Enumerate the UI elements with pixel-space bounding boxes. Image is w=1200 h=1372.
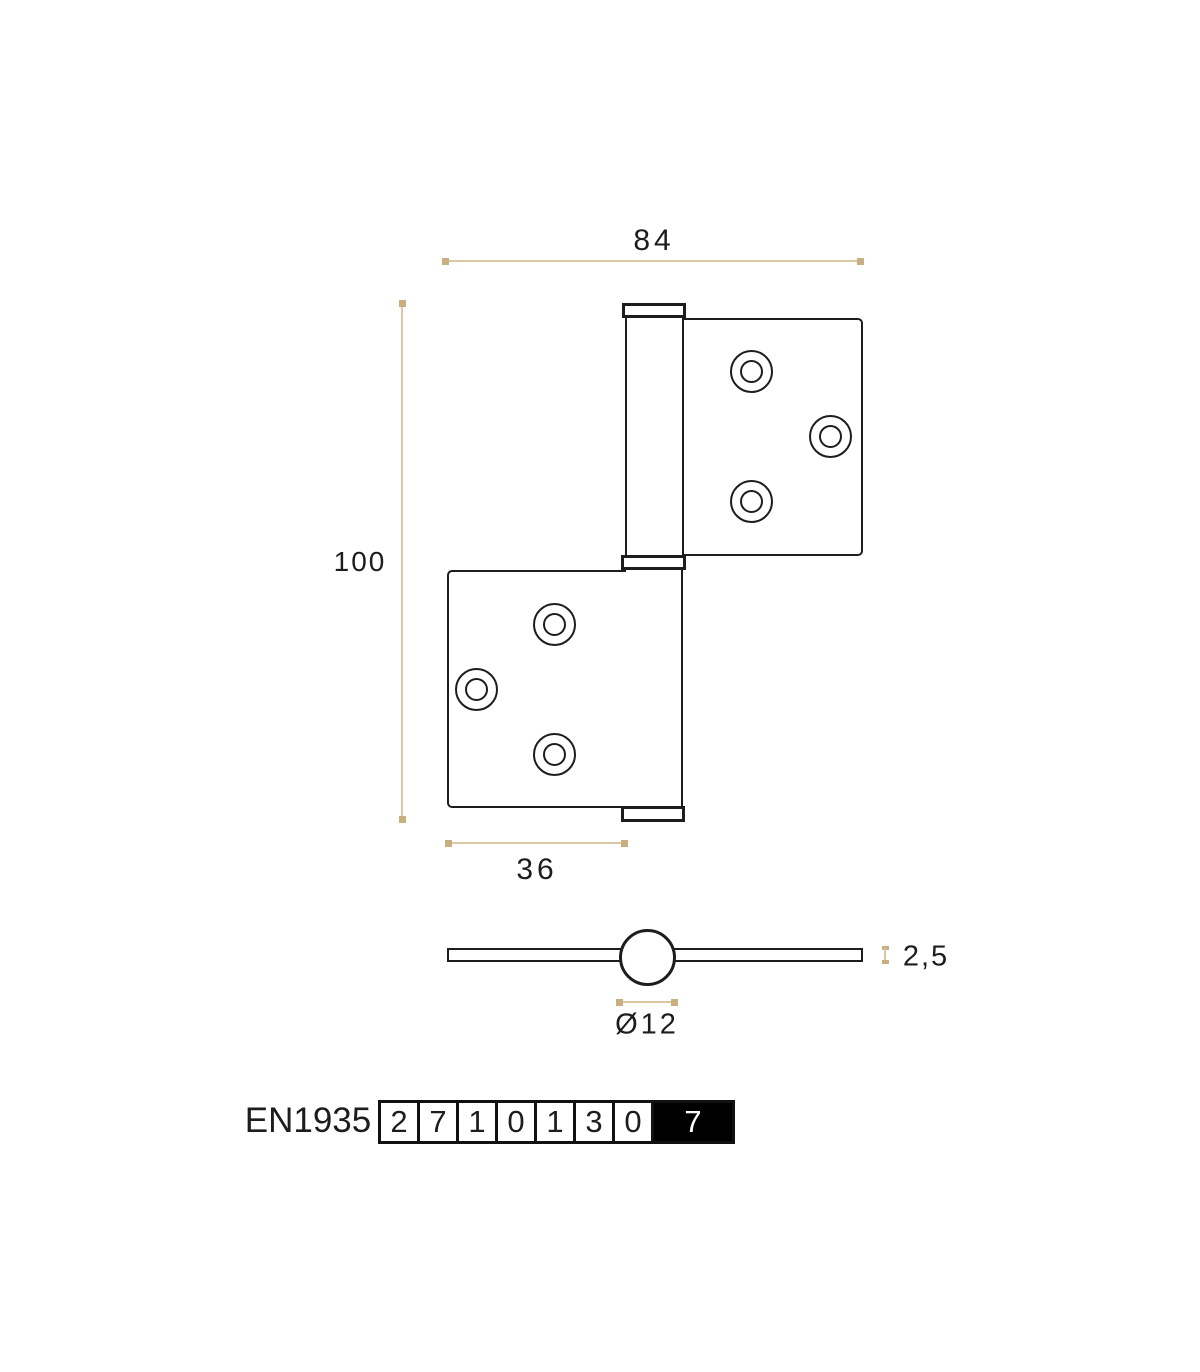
dim-endpoint-dot (621, 840, 628, 847)
screw-hole-inner (543, 613, 566, 636)
screw-hole (533, 733, 576, 776)
screw-hole-inner (465, 678, 488, 701)
dim-endpoint-dot (857, 258, 864, 265)
en1935-grade-cell: 1 (537, 1103, 576, 1141)
en1935-grade-cell: 0 (615, 1103, 654, 1141)
en1935-grade-cell: 0 (498, 1103, 537, 1141)
knuckle-diameter-dim-label: Ø12 (615, 1009, 679, 1042)
screw-hole (730, 480, 773, 523)
screw-hole (809, 415, 852, 458)
dim-endpoint-dot (445, 840, 452, 847)
overall-height-dim-label: 100 (334, 546, 387, 578)
knuckle-diameter-dim-line (619, 1001, 675, 1003)
en1935-grade-cell: 3 (576, 1103, 615, 1141)
en1935-grade-cell: 2 (381, 1103, 420, 1141)
en1935-grade-cell: 7 (420, 1103, 459, 1141)
en1935-grade-table: 2 7 1 0 1 3 0 7 (378, 1100, 735, 1144)
section-knuckle-circle (619, 929, 676, 986)
en1935-label: EN1935 (245, 1101, 371, 1141)
screw-hole (730, 350, 773, 393)
thickness-dim-label: 2,5 (903, 941, 949, 974)
leaf-width-dim-label: 36 (516, 853, 557, 887)
screw-hole-inner (543, 743, 566, 766)
dim-endpoint-dot (882, 960, 889, 964)
upper-knuckle-cap (622, 303, 686, 318)
dim-endpoint-dot (399, 816, 406, 823)
dim-endpoint-dot (671, 999, 678, 1006)
lower-knuckle-barrel (624, 568, 683, 810)
dim-endpoint-dot (616, 999, 623, 1006)
leaf-width-dim-line (448, 842, 626, 844)
screw-hole-inner (819, 425, 842, 448)
en1935-grade-cell: 1 (459, 1103, 498, 1141)
dim-endpoint-dot (399, 300, 406, 307)
screw-hole-inner (740, 360, 763, 383)
overall-width-dim-line (445, 260, 862, 262)
knuckle-joint-band (621, 555, 686, 570)
screw-hole-inner (740, 490, 763, 513)
overall-height-dim-line (401, 303, 403, 820)
technical-drawing-canvas: 84 100 36 (0, 0, 1200, 1372)
upper-knuckle-barrel (625, 315, 684, 558)
overall-width-dim-label: 84 (633, 224, 674, 258)
dim-endpoint-dot (442, 258, 449, 265)
screw-hole (455, 668, 498, 711)
screw-hole (533, 603, 576, 646)
lower-knuckle-cap (621, 806, 685, 822)
en1935-grade-cell-highlighted: 7 (654, 1103, 732, 1141)
